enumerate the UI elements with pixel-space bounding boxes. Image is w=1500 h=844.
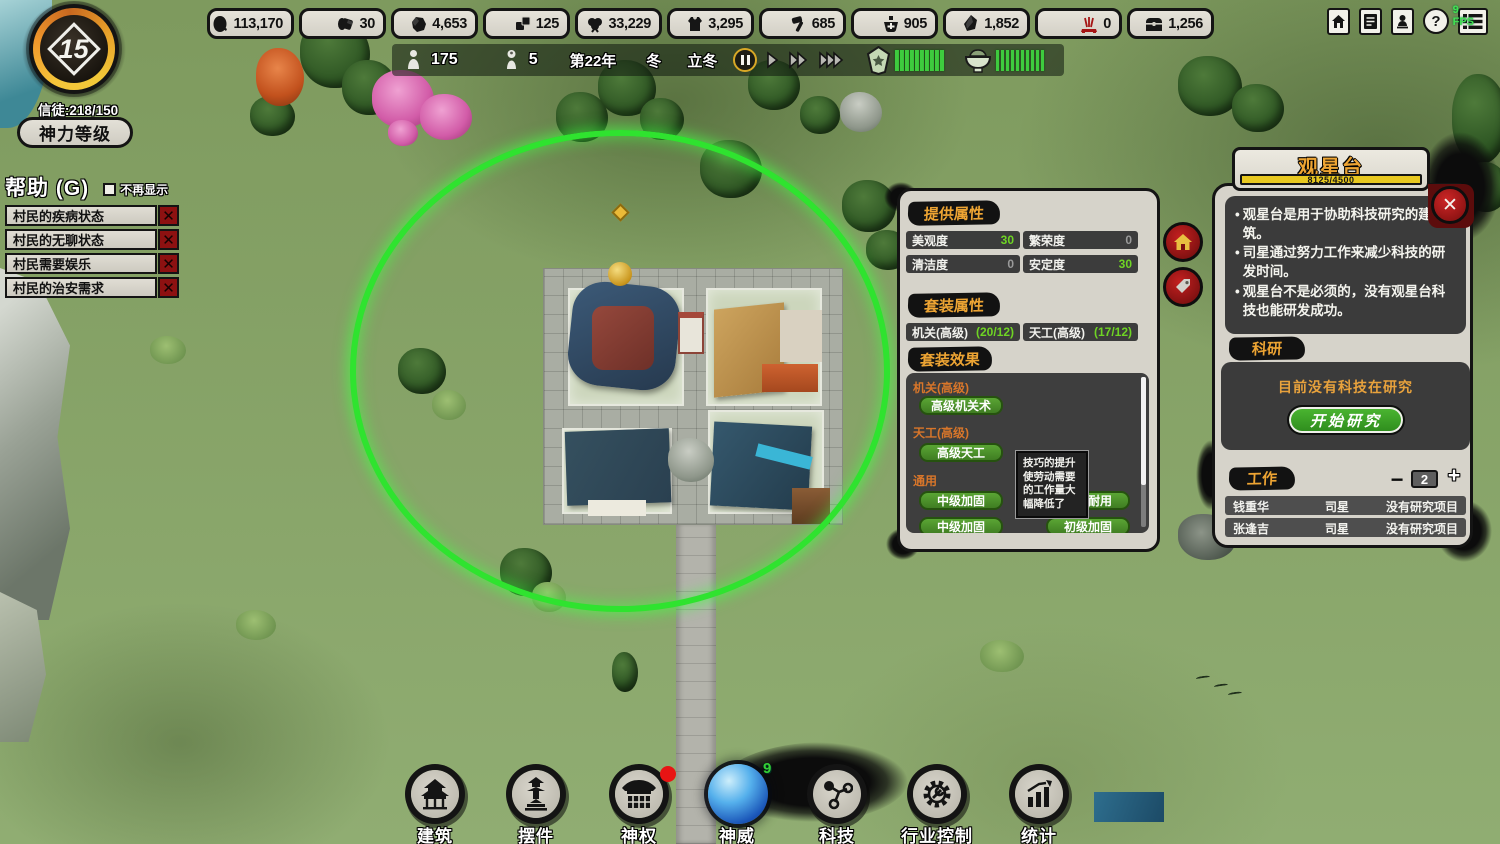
resource-brick[interactable]: 125: [483, 8, 570, 39]
attr-row: 清洁度0: [906, 255, 1020, 273]
medicine-icon: [881, 14, 901, 34]
effect-group-title: 机关(高级): [913, 379, 969, 396]
lantern-icon: [523, 777, 549, 811]
pavilion-icon: [418, 778, 452, 810]
bar-chart-icon: [1024, 779, 1054, 809]
mountain: [0, 268, 70, 620]
work-header: 工作: [1228, 466, 1295, 490]
solar-term-label: 立冬: [687, 50, 717, 71]
attr-row: 繁荣度0: [1023, 231, 1138, 249]
worker-project: 没有研究项目: [1386, 520, 1458, 537]
question-icon: ?: [1431, 13, 1440, 30]
help-item-label: 村民的无聊状态: [5, 229, 157, 250]
attr-row: 安定度30: [1023, 255, 1138, 273]
save-button[interactable]: [1391, 8, 1414, 35]
set-effects-header: 套装效果: [907, 346, 992, 371]
journal-button[interactable]: [1359, 8, 1382, 35]
worker-job: 司星: [1325, 520, 1349, 537]
treasure-icon: [1143, 14, 1165, 34]
resource-value: 905: [904, 16, 927, 32]
home-button[interactable]: [1327, 8, 1350, 35]
bullet-text: 观星台不是必须的，没有观星台科技也能研发成功。: [1243, 282, 1456, 320]
population-icon: [406, 49, 421, 71]
observatory-detail-panel: •观星台是用于协助科技研究的建筑。 •司星通过努力工作来减少科技的研发时间。 •…: [1212, 183, 1473, 548]
set-row: 天工(高级)(17/12): [1023, 323, 1138, 341]
industry-control-button[interactable]: [913, 770, 961, 818]
research-status: 目前没有科技在研究: [1221, 377, 1470, 397]
tag-icon: [1174, 278, 1192, 296]
help-item-label: 村民需要娱乐: [5, 253, 157, 274]
idle-villager-icon: [504, 49, 519, 71]
fast-forward-button[interactable]: [788, 51, 810, 69]
divine-authority-button[interactable]: [615, 770, 663, 818]
worker-increase-button[interactable]: +: [1443, 465, 1465, 487]
scrollbar-track[interactable]: [1141, 377, 1146, 527]
tree: [1232, 84, 1284, 132]
flower-tree: [420, 94, 472, 140]
set-label: 机关(高级): [912, 324, 968, 341]
rock: [840, 92, 882, 132]
attr-label: 安定度: [1029, 256, 1065, 273]
resource-cotton[interactable]: 33,229: [575, 8, 662, 39]
resource-value: 685: [812, 16, 835, 32]
house-icon: [1174, 234, 1192, 250]
start-research-button[interactable]: 开始研究: [1287, 405, 1405, 435]
resource-medicine[interactable]: 905: [851, 8, 938, 39]
food-icon: [210, 14, 230, 34]
level-diamond: 15: [47, 22, 101, 76]
worker-decrease-button[interactable]: −: [1387, 474, 1407, 490]
resource-cloth[interactable]: 3,295: [667, 8, 754, 39]
attr-value: 30: [1119, 257, 1132, 271]
effect-tooltip: 技巧的提升使劳动需要的工作量大幅降低了: [1016, 451, 1088, 518]
help-item: 村民需要娱乐 ✕: [5, 253, 185, 274]
fastest-forward-button[interactable]: [818, 51, 846, 69]
dont-show-checkbox[interactable]: [103, 183, 116, 196]
worker-row[interactable]: 钱重华 司星 没有研究项目: [1225, 496, 1466, 515]
divine-power-level-button[interactable]: 神力等级: [17, 117, 133, 148]
dock-roof: [1094, 792, 1164, 822]
resource-incense[interactable]: 0: [1035, 8, 1122, 39]
statistics-button[interactable]: [1015, 770, 1063, 818]
description-bullet: •观星台不是必须的，没有观星台科技也能研发成功。: [1235, 282, 1456, 320]
food-meter-bars: [996, 50, 1045, 71]
status-strip: 175 5 第22年 冬 立冬: [392, 44, 1064, 76]
dismiss-button[interactable]: ✕: [158, 253, 179, 274]
resource-ore[interactable]: 1,852: [943, 8, 1030, 39]
toolbar-label: 科技: [797, 822, 877, 844]
effect-group-title: 天工(高级): [913, 424, 969, 441]
set-value: (20/12): [976, 325, 1014, 339]
decor-menu-button[interactable]: [512, 770, 560, 818]
gear-wrench-icon: [920, 777, 954, 811]
tag-tab-button[interactable]: [1163, 267, 1203, 307]
attr-label: 繁荣度: [1029, 232, 1065, 249]
effect-button[interactable]: 高级天工: [919, 443, 1003, 462]
sapling: [612, 652, 638, 692]
bird: [1228, 691, 1242, 697]
panel-title-card: 观星台 8125/4500: [1232, 147, 1430, 191]
faith-meter-bars: [895, 50, 944, 71]
help-button[interactable]: ?: [1423, 8, 1449, 34]
toolbar-label: 摆件: [496, 822, 576, 844]
resource-treasure[interactable]: 1,256: [1127, 8, 1214, 39]
tool-icon: [789, 14, 809, 34]
shield-badge-icon: [866, 46, 891, 75]
effect-button[interactable]: 高级机关术: [919, 396, 1003, 415]
bullet-text: 观星台是用于协助科技研究的建筑。: [1243, 205, 1456, 243]
attr-value: 0: [1007, 257, 1014, 271]
resource-value: 0: [1103, 16, 1111, 32]
game-screen: 113,170 30 4,653 125 33,229 3,295 685 9: [0, 0, 1500, 844]
help-panel: 帮助 (G) 不再显示 村民的疾病状态 ✕ 村民的无聊状态 ✕ 村民需要娱乐 ✕…: [5, 172, 185, 298]
resource-value: 33,229: [608, 16, 651, 32]
research-header: 科研: [1228, 336, 1305, 360]
autumn-tree: [256, 48, 304, 106]
help-item: 村民的疾病状态 ✕: [5, 205, 185, 226]
system-bar: ? 9 FPS: [1327, 8, 1488, 35]
effect-button[interactable]: 初级加固: [1046, 517, 1130, 533]
attr-label: 美观度: [912, 232, 948, 249]
research-box: 目前没有科技在研究 开始研究: [1221, 362, 1470, 450]
attr-value: 0: [1125, 233, 1132, 247]
help-item: 村民的无聊状态 ✕: [5, 229, 185, 250]
dismiss-button[interactable]: ✕: [158, 277, 179, 298]
notification-dot: [660, 766, 676, 782]
close-button[interactable]: ✕: [1431, 186, 1469, 224]
play-button[interactable]: [765, 51, 780, 69]
incense-icon: [1078, 14, 1100, 34]
resource-value: 1,256: [1168, 16, 1203, 32]
dock-building: [1086, 788, 1178, 844]
help-item: 村民的治安需求 ✕: [5, 277, 185, 298]
resource-stone[interactable]: 4,653: [391, 8, 478, 39]
level-number: 15: [59, 33, 89, 64]
set-label: 天工(高级): [1029, 324, 1085, 341]
resource-value: 113,170: [233, 16, 283, 32]
help-title: 帮助 (G): [5, 172, 89, 202]
divine-might-count: 9: [763, 760, 771, 777]
set-attrs-header: 套装属性: [907, 292, 1000, 318]
attr-label: 清洁度: [912, 256, 948, 273]
worker-project: 没有研究项目: [1386, 498, 1458, 515]
toolbar-label: 建筑: [395, 822, 475, 844]
progress-text: 8125/4500: [1307, 175, 1354, 185]
food-meter: [964, 47, 1045, 73]
building-progress-bar: 8125/4500: [1240, 174, 1422, 185]
resource-value: 125: [536, 16, 559, 32]
home-icon: [1331, 14, 1346, 29]
effect-button[interactable]: 中级加固: [919, 491, 1003, 510]
believers-count: 信徒:218/150: [8, 99, 148, 119]
resource-value: 3,295: [708, 16, 743, 32]
flower-bush: [388, 120, 418, 146]
dont-show-label: 不再显示: [120, 181, 168, 198]
worker-row[interactable]: 张逢吉 司星 没有研究项目: [1225, 518, 1466, 537]
resource-food[interactable]: 113,170: [207, 8, 294, 39]
provided-attrs-header: 提供属性: [907, 200, 1000, 226]
home-tab-button[interactable]: [1163, 222, 1203, 262]
resource-wood[interactable]: 30: [299, 8, 386, 39]
season-label: 冬: [646, 50, 661, 71]
resource-bar: 113,170 30 4,653 125 33,229 3,295 685 9: [207, 8, 1214, 39]
idle-count: 5: [529, 51, 538, 69]
build-menu-button[interactable]: [411, 770, 459, 818]
bullet-text: 司星通过努力工作来减少科技的研发时间。: [1243, 243, 1456, 281]
rice-bowl-icon: [964, 47, 992, 73]
pause-button[interactable]: [733, 48, 757, 72]
level-badge[interactable]: 15: [33, 8, 115, 90]
effect-group-title: 通用: [913, 472, 937, 489]
stone-icon: [409, 14, 429, 34]
dismiss-button[interactable]: ✕: [158, 205, 179, 226]
worker-name: 张逢吉: [1233, 520, 1269, 537]
toolbar-label: 神威: [697, 822, 777, 844]
help-item-label: 村民的治安需求: [5, 277, 157, 298]
dismiss-button[interactable]: ✕: [158, 229, 179, 250]
toolbar-label: 神权: [599, 822, 679, 844]
worker-count-value: 2: [1411, 470, 1438, 488]
bird: [1214, 683, 1228, 689]
fps-counter: 9 FPS: [1453, 4, 1474, 28]
cotton-icon: [585, 14, 605, 34]
brick-icon: [513, 14, 533, 34]
save-icon: [1395, 13, 1410, 30]
tree: [800, 96, 840, 134]
temple-icon: [621, 778, 657, 810]
worker-job: 司星: [1325, 498, 1349, 515]
population-count: 175: [431, 51, 458, 69]
bush: [980, 640, 1024, 672]
description-bullet: •观星台是用于协助科技研究的建筑。: [1235, 205, 1456, 243]
resource-value: 30: [359, 16, 375, 32]
wood-icon: [336, 14, 356, 34]
attr-row: 美观度30: [906, 231, 1020, 249]
resource-tools[interactable]: 685: [759, 8, 846, 39]
attr-value: 30: [1001, 233, 1014, 247]
ore-icon: [961, 14, 981, 34]
toolbar-label: 统计: [999, 822, 1079, 844]
description-bullet: •司星通过努力工作来减少科技的研发时间。: [1235, 243, 1456, 281]
resource-value: 1,852: [984, 16, 1019, 32]
bush: [150, 336, 186, 364]
faith-meter: [866, 46, 944, 75]
resource-value: 4,653: [432, 16, 467, 32]
scrollbar-thumb[interactable]: [1141, 377, 1146, 485]
divine-might-orb-button[interactable]: [708, 764, 768, 824]
document-icon: [1363, 13, 1378, 30]
cloth-icon: [685, 14, 705, 34]
worker-name: 钱重华: [1233, 498, 1269, 515]
tech-tree-icon: [821, 778, 853, 810]
set-value: (17/12): [1094, 325, 1132, 339]
toolbar-label: 行业控制: [877, 822, 997, 844]
bush: [236, 610, 276, 640]
help-item-label: 村民的疾病状态: [5, 205, 157, 226]
set-row: 机关(高级)(20/12): [906, 323, 1020, 341]
effect-button[interactable]: 中级加固: [919, 517, 1003, 533]
year-label: 第22年: [570, 50, 617, 71]
bird: [1196, 675, 1210, 681]
technology-menu-button[interactable]: [813, 770, 861, 818]
